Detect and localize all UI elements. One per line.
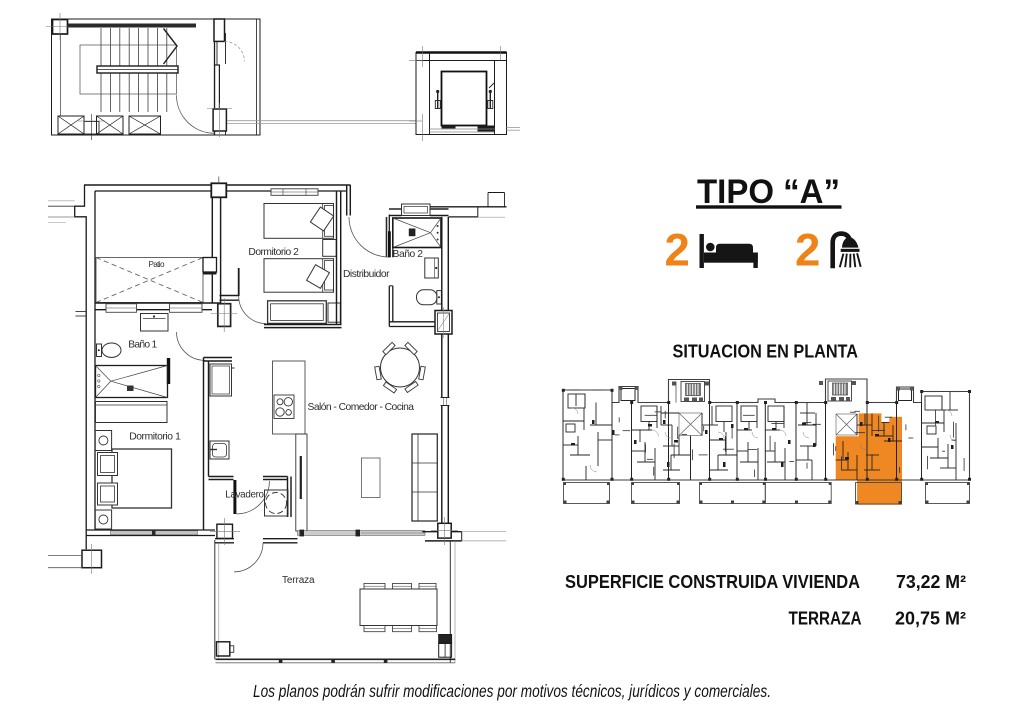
svg-text:2: 2 (665, 225, 690, 276)
svg-text:Baño 1: Baño 1 (128, 339, 157, 350)
svg-text:TERRAZA: TERRAZA (789, 609, 862, 629)
svg-text:Patio: Patio (149, 260, 165, 269)
svg-text:Dormitorio 1: Dormitorio 1 (129, 431, 181, 442)
svg-text:Lavadero: Lavadero (225, 489, 264, 500)
svg-text:SITUACION EN PLANTA: SITUACION EN PLANTA (673, 341, 859, 362)
svg-text:Distribuidor: Distribuidor (343, 269, 390, 280)
svg-text:Los planos podrán sufrir modif: Los planos podrán sufrir modificaciones … (253, 681, 771, 701)
svg-text:73,22 M²: 73,22 M² (896, 572, 966, 592)
svg-text:Dormitorio 2: Dormitorio 2 (248, 247, 299, 258)
svg-text:2: 2 (795, 225, 820, 276)
svg-text:SUPERFICIE CONSTRUIDA VIVIENDA: SUPERFICIE CONSTRUIDA VIVIENDA (565, 572, 860, 592)
svg-text:Terraza: Terraza (282, 575, 315, 586)
svg-text:Baño 2: Baño 2 (393, 249, 424, 260)
svg-text:Salón - Comedor - Cocina: Salón - Comedor - Cocina (308, 402, 415, 413)
svg-text:20,75 M²: 20,75 M² (895, 609, 966, 629)
